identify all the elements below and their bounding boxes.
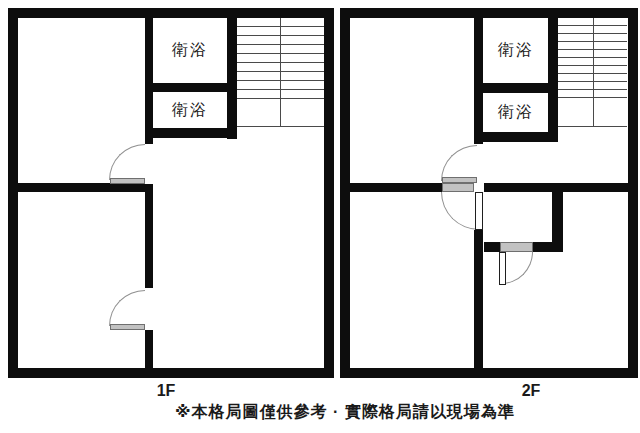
door-swing-arc [109,290,145,326]
door-leaf-closed [442,183,474,192]
outer-wall-left [8,8,18,378]
disclaimer-note: ※本格局圖僅供參考 · 實際格局請以現場為準 [60,402,630,423]
outer-wall-right [628,8,638,378]
interior-wall-vertical [145,184,153,288]
interior-wall-horizontal [350,183,442,192]
interior-wall-vertical [474,230,483,368]
bathroom-wall-right [548,18,558,139]
outer-wall-bottom [8,368,334,378]
interior-wall-vertical [145,330,153,368]
interior-wall-horizontal [18,183,145,192]
stair-divider [593,18,594,127]
outer-wall-left [340,8,350,378]
outer-wall-top [8,8,334,18]
door-leaf-open [475,192,483,230]
bathroom-label-lower: 衛浴 [153,92,227,128]
door-leaf [110,178,145,184]
floorplan-1f: 衛浴 衛浴 [8,8,334,378]
door-swing-arc [109,144,145,180]
closet-wall-horizontal [484,242,500,252]
door-leaf [110,324,145,330]
interior-wall-vertical [145,18,153,144]
floor-label-1f: 1F [140,382,192,400]
bathroom-divider-wall [474,83,558,93]
outer-wall-bottom [340,368,638,378]
staircase [558,18,627,127]
outer-wall-top [340,8,638,18]
bathroom-wall-bottom [474,132,558,142]
door-swing-arc [441,192,479,230]
door-leaf-closed [500,242,533,252]
stair-landing-edge [237,126,324,127]
floorplan-2f: 衛浴 衛浴 [340,8,638,378]
floor-label-2f: 2F [505,382,557,400]
bathroom-label-upper: 衛浴 [484,18,548,83]
staircase [237,18,324,127]
closet-wall-horizontal [533,242,563,252]
bathroom-wall-bottom [145,128,237,138]
bathroom-label-lower: 衛浴 [484,93,548,132]
interior-wall-horizontal [484,183,628,192]
bathroom-label-upper: 衛浴 [153,18,227,83]
door-swing-arc [441,145,477,181]
outer-wall-right [324,8,334,378]
stair-landing-edge [558,126,627,127]
interior-wall-vertical [474,18,483,144]
stair-divider [280,18,281,127]
door-leaf-open [499,252,506,285]
bathroom-wall-right [227,18,237,139]
bathroom-divider-wall [145,83,237,92]
